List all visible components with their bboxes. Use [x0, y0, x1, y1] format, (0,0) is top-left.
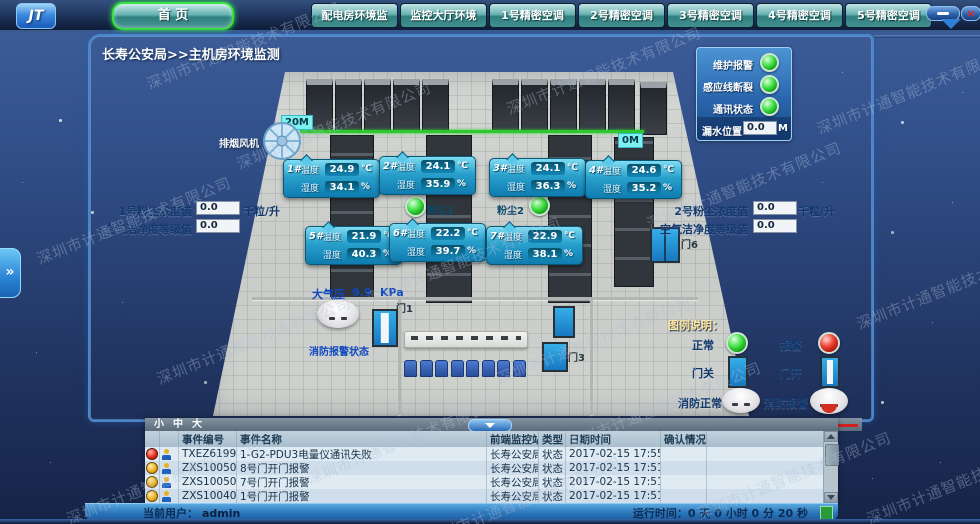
hum-value: 35.2: [627, 182, 661, 195]
tab-ac-3[interactable]: 3号精密空调: [667, 3, 754, 28]
sensor-line-break-led: [760, 75, 779, 94]
temp-value: 24.9: [325, 163, 359, 176]
rack-cabinet: [579, 79, 606, 132]
event-name: 1-G2-PDU3电量仪通讯失败: [237, 447, 487, 461]
dust-1-label: 粉尘1: [427, 202, 454, 217]
top-nav-bar: JT 首 页 配电房环境监 监控大厅环境 1号精密空调 2号精密空调 3号精密空…: [0, 0, 980, 32]
header-datetime: 日期时间: [566, 431, 661, 447]
sensor-id: 4#: [589, 165, 603, 176]
chevron-down-icon: [485, 423, 495, 428]
event-ack: [661, 461, 707, 475]
exhaust-fan-label: 排烟风机: [219, 135, 259, 150]
current-user-value: admin: [202, 507, 240, 520]
alarm-yellow-icon: [146, 490, 158, 502]
person-icon: [162, 463, 171, 474]
console-desk: [404, 331, 528, 348]
sensor-box-2: 2#温度24.1℃ 湿度35.9%: [379, 156, 476, 195]
legend-door-open-icon: [820, 356, 840, 388]
font-size-medium-button[interactable]: 中: [173, 418, 183, 431]
maintenance-alarm-led: [760, 53, 779, 72]
table-scrollbar[interactable]: [823, 431, 838, 503]
sensor-id: 3#: [493, 163, 507, 174]
sensor-id: 7#: [490, 231, 504, 242]
hum-value: 38.1: [528, 248, 562, 261]
chair: [482, 360, 495, 377]
temp-value: 22.2: [431, 227, 465, 240]
temp-value: 24.6: [627, 164, 661, 177]
tab-ac-4[interactable]: 4号精密空调: [756, 3, 843, 28]
temp-label: 温度: [323, 230, 345, 243]
hum-label: 湿度: [407, 245, 429, 258]
current-user-label: 当前用户：: [143, 507, 198, 520]
server-rack-row: [306, 79, 449, 132]
expand-sidebar-tab[interactable]: »: [0, 248, 21, 298]
chair: [513, 360, 526, 377]
hum-unit: %: [467, 246, 476, 256]
event-name: 8号门开门报警: [237, 461, 487, 475]
legend-fire-alarm-icon: [810, 388, 848, 414]
table-row[interactable]: ZXS1005012 8号门开门报警 长寿公安局 状态 2017-02-15 1…: [145, 461, 824, 476]
hum-value: 39.7: [431, 245, 465, 258]
app-logo: JT: [16, 3, 56, 29]
rack-cabinet: [364, 79, 391, 132]
header-ack: 确认情况: [661, 431, 707, 447]
legend-fire-normal-icon: [722, 388, 760, 413]
event-table: 小 中 大 事件编号 事件名称 前端监控站 类型 日期时间 确认情况 TXEZ6…: [145, 418, 838, 503]
pressure-label: 大气压: [312, 286, 345, 302]
rack-cabinet: [393, 79, 420, 132]
legend-door-open-label: 门开: [780, 365, 802, 381]
legend-fire-normal-label: 消防正常: [678, 395, 722, 411]
event-station: 长寿公安局: [487, 447, 539, 461]
person-icon: [162, 477, 171, 488]
fire-alarm-status-label: 消防报警状态: [309, 343, 369, 358]
dust-right-value-2: 0.0: [753, 219, 797, 233]
header-type: 类型: [539, 431, 566, 447]
dust-led-1: [405, 196, 426, 217]
dust-left-value-2: 0.0: [196, 219, 240, 233]
hum-label: 湿度: [507, 180, 529, 193]
person-icon: [162, 491, 171, 502]
event-type: 状态: [539, 461, 566, 475]
sensor-box-5: 5#温度21.9℃ 湿度40.3%: [305, 226, 402, 265]
event-type: 状态: [539, 447, 566, 461]
sensor-id: 5#: [309, 231, 323, 242]
event-id: ZXS1005011: [179, 475, 237, 489]
server-rack-row: [492, 79, 635, 132]
tab-ac-5[interactable]: 5号精密空调: [845, 3, 932, 28]
event-id: ZXS1005012: [179, 461, 237, 475]
hum-value: 34.1: [325, 181, 359, 194]
table-row[interactable]: ZXS1004011 1号门开门报警 长寿公安局 状态 2017-02-15 1…: [145, 489, 824, 504]
watermark-text: 深圳市计通智能技术有限公司: [864, 432, 980, 524]
nav-tabs: 配电房环境监 监控大厅环境 1号精密空调 2号精密空调 3号精密空调 4号精密空…: [311, 3, 934, 28]
tab-ac-1[interactable]: 1号精密空调: [489, 3, 576, 28]
door-1-icon: [372, 309, 398, 347]
temp-label: 温度: [301, 163, 323, 176]
table-row[interactable]: ZXS1005011 7号门开门报警 长寿公安局 状态 2017-02-15 1…: [145, 475, 824, 490]
inner-wall: [590, 297, 593, 415]
dust-right-unit-1: 千粒/升: [798, 203, 835, 219]
comm-status-led: [760, 97, 779, 116]
sensor-box-4: 4#温度24.6℃ 湿度35.2%: [585, 160, 682, 199]
event-name: 7号门开门报警: [237, 475, 487, 489]
arrow-up-icon: [827, 434, 835, 439]
leak-position-unit: M: [778, 123, 788, 134]
rack-cabinet: [492, 79, 519, 132]
alarm-status-panel: 维护报警 感应线断裂 通讯状态 漏水位置 0.0 M: [696, 47, 792, 141]
temp-label: 温度: [407, 227, 429, 240]
dust-right-label-1: 2号粉尘浓度值: [658, 203, 748, 219]
temp-unit: ℃: [457, 161, 468, 171]
alarm-red-icon: [146, 448, 158, 460]
legend-fire-alarm-label: 消防报警: [764, 395, 808, 411]
rack-cabinet: [521, 79, 548, 132]
header-event-id: 事件编号: [179, 431, 237, 447]
temp-value: 24.1: [421, 160, 455, 173]
hum-unit: %: [663, 183, 672, 193]
door-6-label: 门6: [681, 236, 698, 251]
smoke-detector-icon: [317, 300, 359, 328]
chair: [497, 360, 510, 377]
home-tab[interactable]: 首 页: [112, 2, 234, 30]
leak-position-label: 漏水位置: [702, 123, 742, 138]
hum-label: 湿度: [603, 182, 625, 195]
scroll-down-button[interactable]: [824, 492, 838, 503]
dust-left-label-1: 1号粉尘浓度值: [100, 203, 192, 219]
legend-door-closed-label: 门关: [692, 365, 714, 381]
scada-screen: JT 首 页 配电房环境监 监控大厅环境 1号精密空调 2号精密空调 3号精密空…: [0, 0, 980, 524]
leak-position-value: 0.0: [743, 121, 777, 135]
sensor-box-6: 6#温度22.2℃ 湿度39.7%: [389, 223, 486, 262]
door-3-icon: [542, 342, 568, 372]
event-name: 1号门开门报警: [237, 489, 487, 503]
event-id: ZXS1004011: [179, 489, 237, 503]
event-type: 状态: [539, 489, 566, 503]
scroll-thumb[interactable]: [825, 444, 839, 466]
scroll-up-button[interactable]: [824, 431, 838, 442]
close-button[interactable]: ×: [961, 6, 980, 21]
door-1-label: 门1: [396, 300, 413, 315]
tab-power-room-env[interactable]: 配电房环境监: [311, 3, 398, 28]
sensor-box-3: 3#温度24.1℃ 湿度36.3%: [489, 158, 586, 197]
dust-left-unit-1: 千粒/升: [243, 203, 280, 219]
temp-value: 22.9: [528, 230, 562, 243]
door-3-label: 门3: [568, 349, 585, 364]
table-header-row: 事件编号 事件名称 前端监控站 类型 日期时间 确认情况: [145, 431, 824, 448]
chair: [404, 360, 417, 377]
event-ack: [661, 475, 707, 489]
chair: [420, 360, 433, 377]
dust-left-value-1: 0.0: [196, 201, 240, 215]
font-size-small-button[interactable]: 小: [154, 418, 164, 431]
sensor-id: 1#: [287, 164, 301, 175]
header-station: 前端监控站: [487, 431, 539, 447]
font-size-large-button[interactable]: 大: [192, 418, 202, 431]
event-ack: [661, 489, 707, 503]
minimize-icon: [937, 12, 949, 15]
hum-unit: %: [457, 179, 466, 189]
sensor-id: 2#: [383, 161, 397, 172]
event-station: 长寿公安局: [487, 461, 539, 475]
hum-label: 湿度: [301, 181, 323, 194]
legend-title: 图例说明：: [668, 317, 723, 333]
temp-unit: ℃: [567, 163, 578, 173]
sensor-box-1: 1#温度24.9℃ 湿度34.1%: [283, 159, 380, 198]
temp-label: 温度: [397, 160, 419, 173]
dust-right-value-1: 0.0: [753, 201, 797, 215]
temp-unit: ℃: [564, 231, 575, 241]
rack-cabinet: [640, 82, 667, 135]
sensor-id: 6#: [393, 228, 407, 239]
sensor-box-7: 7#温度22.9℃ 湿度38.1%: [486, 226, 583, 265]
door-icon: [553, 306, 575, 338]
legend-normal-label: 正常: [692, 337, 714, 353]
tab-monitor-hall-env[interactable]: 监控大厅环境: [400, 3, 487, 28]
table-toolbar: 小 中 大: [145, 418, 838, 431]
alarm-yellow-icon: [146, 462, 158, 474]
header-event-name: 事件名称: [237, 431, 487, 447]
chair: [451, 360, 464, 377]
legend-alarm-label: 报警: [780, 337, 802, 353]
legend-door-closed-icon: [728, 356, 748, 388]
table-row[interactable]: TXEZ619999 1-G2-PDU3电量仪通讯失败 长寿公安局 状态 201…: [145, 447, 824, 462]
hum-label: 湿度: [504, 248, 526, 261]
leak-position-row: 漏水位置 0.0 M: [697, 117, 791, 140]
exhaust-fan-icon: [262, 121, 302, 161]
leak-detection-cable: [300, 130, 644, 133]
dust-left-label-2: 空气洁净度等级值: [100, 221, 192, 237]
event-datetime: 2017-02-15 17:51:44: [566, 475, 661, 489]
hum-label: 湿度: [323, 248, 345, 261]
temp-label: 温度: [504, 230, 526, 243]
event-datetime: 2017-02-15 17:51:31: [566, 489, 661, 503]
sensor-line-break-label: 感应线断裂: [703, 79, 753, 94]
event-ack: [661, 447, 707, 461]
chair: [466, 360, 479, 377]
temp-label: 温度: [603, 164, 625, 177]
temp-label: 温度: [507, 162, 529, 175]
dust-right-label-2: 空气洁净度等级值: [658, 221, 748, 237]
dropdown-triangle-icon[interactable]: [941, 19, 961, 29]
maintenance-alarm-label: 维护报警: [713, 57, 753, 72]
cable-end-tag: 0M: [618, 133, 643, 148]
rack-cabinet: [335, 79, 362, 132]
bottom-frame: [0, 519, 980, 524]
person-icon: [162, 449, 171, 460]
dust-led-2: [529, 195, 550, 216]
comm-status-label: 通讯状态: [713, 101, 753, 116]
event-id: TXEZ619999: [179, 447, 237, 461]
event-station: 长寿公安局: [487, 475, 539, 489]
hum-value: 35.9: [421, 178, 455, 191]
rack-cabinet: [422, 79, 449, 132]
temp-unit: ℃: [663, 165, 674, 175]
pressure-value: 9.9: [352, 286, 372, 299]
rack-cabinet: [608, 79, 635, 132]
arrow-down-icon: [827, 495, 835, 500]
event-station: 长寿公安局: [487, 489, 539, 503]
temp-unit: ℃: [467, 228, 478, 238]
pressure-unit: KPa: [380, 286, 404, 299]
frame-line: [874, 35, 980, 38]
legend-normal-led: [726, 332, 748, 354]
event-datetime: 2017-02-15 17:55:35: [566, 447, 661, 461]
tab-ac-2[interactable]: 2号精密空调: [578, 3, 665, 28]
page-title: 长寿公安局>>主机房环境监测: [102, 44, 280, 63]
rack-cabinet: [550, 79, 577, 132]
chair-row: [404, 360, 526, 376]
hum-unit: %: [567, 181, 576, 191]
alarm-yellow-icon: [146, 476, 158, 488]
temp-unit: ℃: [361, 164, 372, 174]
hum-value: 40.3: [347, 248, 381, 261]
event-datetime: 2017-02-15 17:51:44: [566, 461, 661, 475]
hum-unit: %: [564, 249, 573, 259]
event-type: 状态: [539, 475, 566, 489]
legend-alarm-led: [818, 332, 840, 354]
dust-2-label: 粉尘2: [497, 202, 524, 217]
hum-unit: %: [361, 182, 370, 192]
hum-label: 湿度: [397, 178, 419, 191]
chair: [435, 360, 448, 377]
temp-value: 24.1: [531, 162, 565, 175]
temp-value: 21.9: [347, 230, 381, 243]
hum-value: 36.3: [531, 180, 565, 193]
